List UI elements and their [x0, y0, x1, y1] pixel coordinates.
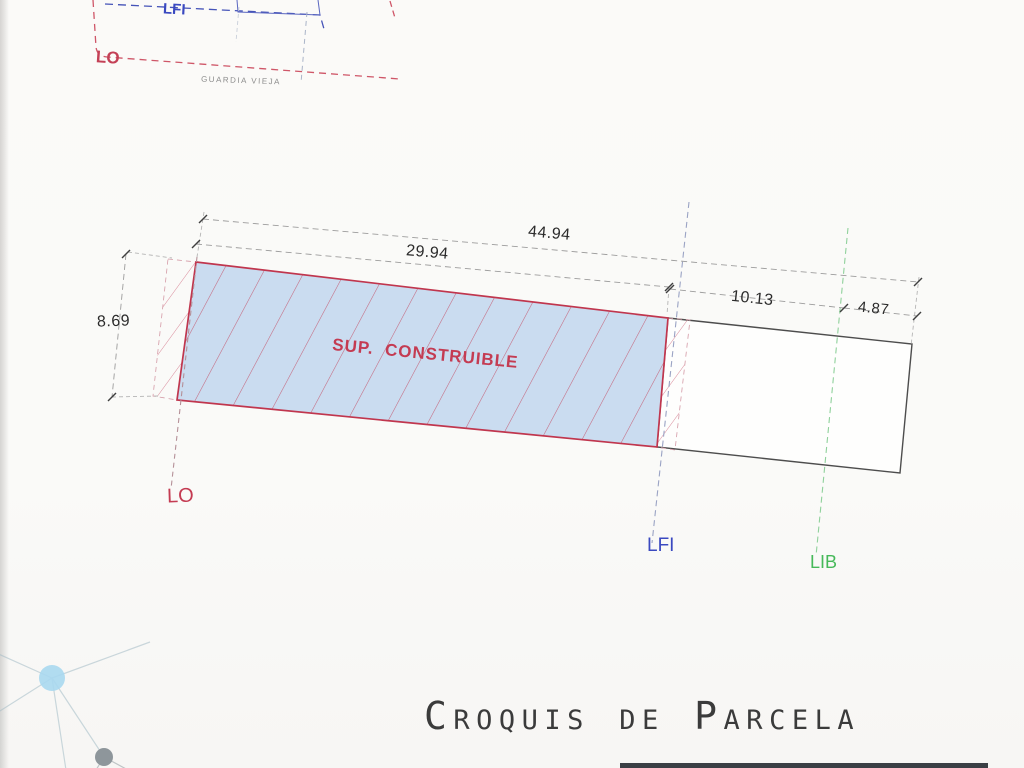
minimap-lo-label: LO: [95, 48, 120, 67]
parcel-drawing-canvas: [0, 0, 1024, 768]
minimap-lfi-line: [105, 4, 324, 29]
lo-line-label: LO: [167, 486, 194, 507]
sheet-title: Croquis de Parcela: [424, 697, 860, 735]
network-decoration: [0, 642, 150, 768]
dim-edge-width: 4.87: [857, 299, 890, 317]
minimap-axis-line: [301, 12, 307, 83]
bottom-titleblock-bar: [620, 763, 988, 768]
parcel-plan: [153, 259, 912, 473]
minimap-lfi-label: LFI: [163, 1, 186, 17]
network-node-gray: [95, 748, 113, 766]
network-node-blue: [39, 665, 65, 691]
lib-line-label: LIB: [810, 553, 837, 571]
lfi-line-label: LFI: [647, 536, 674, 555]
minimap-boundary-right: [390, 1, 395, 18]
plan-sheet: LFI LO GUARDIA VIEJA 44.94 29.94 8.69 10…: [0, 0, 1024, 768]
dim-buildable-depth: 8.69: [97, 313, 131, 330]
minimap: [93, 0, 400, 83]
parcel-rear-area: [657, 318, 912, 473]
